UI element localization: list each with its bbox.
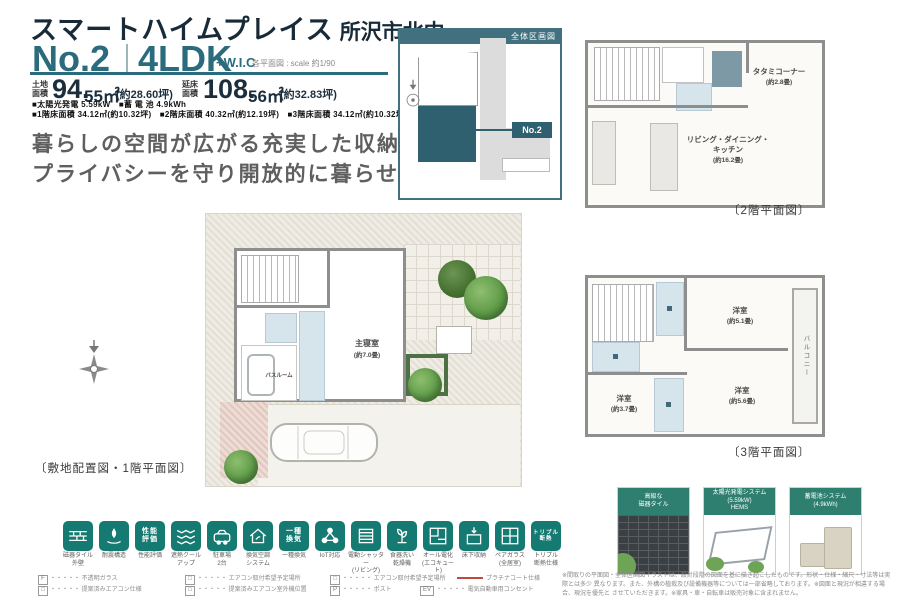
partition-wall	[588, 105, 748, 108]
partition-wall	[237, 305, 329, 308]
flyer-page: スマートハイムプレイス所沢市北中 No.2 4LDK +W.I.C 各平面図 :…	[0, 0, 900, 600]
storage-box-icon	[459, 521, 489, 551]
solar-photo	[704, 515, 775, 574]
legend-item: □・・・・・ 提案済みエアコン室外機位置	[185, 584, 307, 596]
feature-shutter: 電動シャッター(リビング)	[347, 521, 385, 576]
feature-tile: 磁器タイル外壁	[59, 521, 97, 568]
site-map: 全体区画図 No.2	[398, 28, 562, 200]
mini-compass-icon	[404, 78, 422, 112]
feature-parking: 駐車場2台	[203, 521, 241, 568]
wet-area-1f	[299, 311, 325, 401]
highlight-solar-title: 太陽光発電システム (5.59kW) HEMS	[704, 488, 775, 515]
caption-1f: 〔敷地配置図・1階平面図〕	[35, 460, 192, 476]
closet-dot	[667, 306, 672, 311]
closet-3f-2	[592, 342, 640, 372]
legend-item-ev: EV・・・・・ 電気自動車用コンセント	[420, 584, 534, 596]
ventilation-icon: 一種換気	[279, 521, 309, 551]
feature-iot: IoT対応	[311, 521, 349, 561]
feature-insulation: トリプル断熱 トリプル断熱仕様	[527, 521, 565, 568]
caption-3f: 〔3階平面図〕	[728, 444, 810, 460]
legend-item-platinum: プラチナコート仕様	[457, 573, 540, 582]
floor-plan-3f: 洋室 (約5.1畳) 洋室 (約3.7畳) 洋室 (約5.6畳) バルコニー	[585, 275, 825, 437]
house-1f: バスルーム 主寝室 (約7.0畳)	[234, 248, 406, 402]
feature-glass: ペアガラス(全居室)	[491, 521, 529, 568]
window-icon	[495, 521, 525, 551]
partition-wall	[684, 278, 687, 350]
partition-wall	[588, 372, 687, 375]
feature-heatshield: 遮熱クールアップ	[167, 521, 205, 568]
site-plan-1f: バスルーム 主寝室 (約7.0畳)	[205, 213, 522, 487]
highlight-battery-title: 蓄電池システム (4.9kWh)	[790, 488, 861, 515]
feature-performance: 性能評価 性能評価	[131, 521, 169, 561]
plot-upper	[418, 52, 478, 106]
tatami-corner-label: タタミコーナー (約2.8畳)	[736, 67, 822, 88]
floor-plan-2f: タタミコーナー (約2.8畳) リビング・ダイニング・ キッチン (約16.2畳…	[585, 40, 825, 208]
highlight-battery-box: 蓄電池システム (4.9kWh)	[789, 487, 862, 575]
garden-shed	[436, 326, 472, 354]
closet-dot	[666, 402, 671, 407]
legend-item: P・・・・・ ポスト	[330, 584, 392, 596]
washroom-1f	[265, 313, 297, 343]
plot-connector	[476, 129, 516, 131]
performance-icon: 性能評価	[135, 521, 165, 551]
closet-3f-3	[654, 378, 684, 432]
feature-aircon: 換気空調システム	[239, 521, 277, 568]
closet-3f-1	[656, 282, 684, 336]
room-3f-2-label: 洋室 (約3.7畳)	[596, 394, 652, 415]
divider	[126, 44, 128, 72]
shutter-icon	[351, 521, 381, 551]
feature-storage: 床下収納	[455, 521, 493, 561]
heat-shield-icon	[171, 521, 201, 551]
layout-suffix: +W.I.C	[216, 55, 255, 70]
closet-dot	[613, 354, 618, 359]
partition-wall	[684, 348, 788, 351]
tile-icon	[63, 521, 93, 551]
legend-item: □・・・・・ 提案済みエアコン仕様	[38, 584, 142, 596]
car-glyph-icon	[207, 521, 237, 551]
balcony-3f: バルコニー	[792, 288, 818, 424]
red-line-symbol	[457, 577, 483, 579]
stairs-3f	[592, 284, 654, 342]
land-area-label: 土地面積	[32, 80, 50, 98]
plot-no2-fill	[418, 106, 476, 162]
tile-photo	[618, 515, 689, 574]
car-icon	[268, 418, 380, 468]
battery-photo	[790, 515, 861, 574]
highlight-tile-title: 高級な 磁器タイル	[618, 488, 689, 515]
site-map-note-box	[502, 158, 550, 172]
disclaimer: ※間取りの平面図・全体区画図イラストは、設計段階の図面を基に描き起こしたものです…	[562, 572, 894, 599]
highlight-tile-box: 高級な 磁器タイル	[617, 487, 690, 575]
network-icon	[315, 521, 345, 551]
hand-leaf-icon	[99, 521, 129, 551]
insulation-icon: トリプル断熱	[531, 521, 561, 551]
bush	[224, 450, 258, 484]
stairs-2f	[594, 47, 660, 101]
feature-quake: 耐震構造	[95, 521, 133, 561]
bathroom-label: バスルーム	[259, 373, 299, 380]
building-area-label: 延床面積	[182, 80, 200, 98]
pantry-2f	[592, 121, 616, 185]
scale-note: 各平面図 : scale 約1/90	[252, 58, 335, 69]
house-air-icon	[243, 521, 273, 551]
feature-allelectric: オール電化(エコキュート)	[419, 521, 457, 576]
spec-line-2: ■1階床面積 34.12㎡(約10.32坪) ■2階床面積 40.32㎡(約12…	[32, 109, 407, 120]
compass-icon	[74, 338, 114, 388]
stairs-1f	[241, 255, 299, 303]
floorplan-icon	[423, 521, 453, 551]
catchphrase-line-1: 暮らしの空間が広がる充実した収納と	[32, 128, 423, 158]
ldk-label: リビング・ダイニング・ キッチン (約16.2畳)	[658, 135, 798, 166]
plant-icon	[387, 521, 417, 551]
building-area-dec: 56㎡	[248, 82, 284, 107]
bedroom-label: 主寝室 (約7.0畳)	[329, 339, 405, 361]
tree	[464, 276, 508, 320]
partition-wall	[327, 251, 330, 308]
building-area-tsubo: (約32.83坪)	[280, 86, 337, 102]
bush	[408, 368, 442, 402]
highlight-solar-box: 太陽光発電システム (5.59kW) HEMS	[703, 487, 776, 575]
balcony-label: バルコニー	[800, 335, 810, 378]
wc-2f	[662, 47, 704, 83]
plot-no2-tag: No.2	[512, 122, 552, 138]
feature-dishwasher: 食器洗い乾燥機	[383, 521, 421, 568]
feature-ventilation: 一種換気 一種換気	[275, 521, 313, 561]
room-3f-3-label: 洋室 (約5.6畳)	[700, 386, 784, 407]
room-3f-1-label: 洋室 (約5.1畳)	[698, 306, 782, 327]
caption-2f: 〔2階平面図〕	[728, 202, 810, 218]
